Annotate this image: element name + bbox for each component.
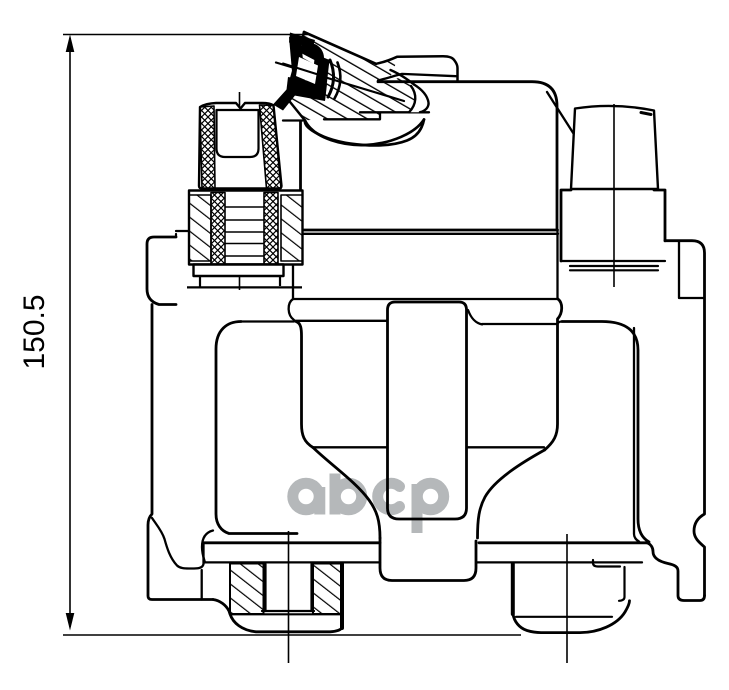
svg-text:150.5: 150.5 [18,294,51,369]
